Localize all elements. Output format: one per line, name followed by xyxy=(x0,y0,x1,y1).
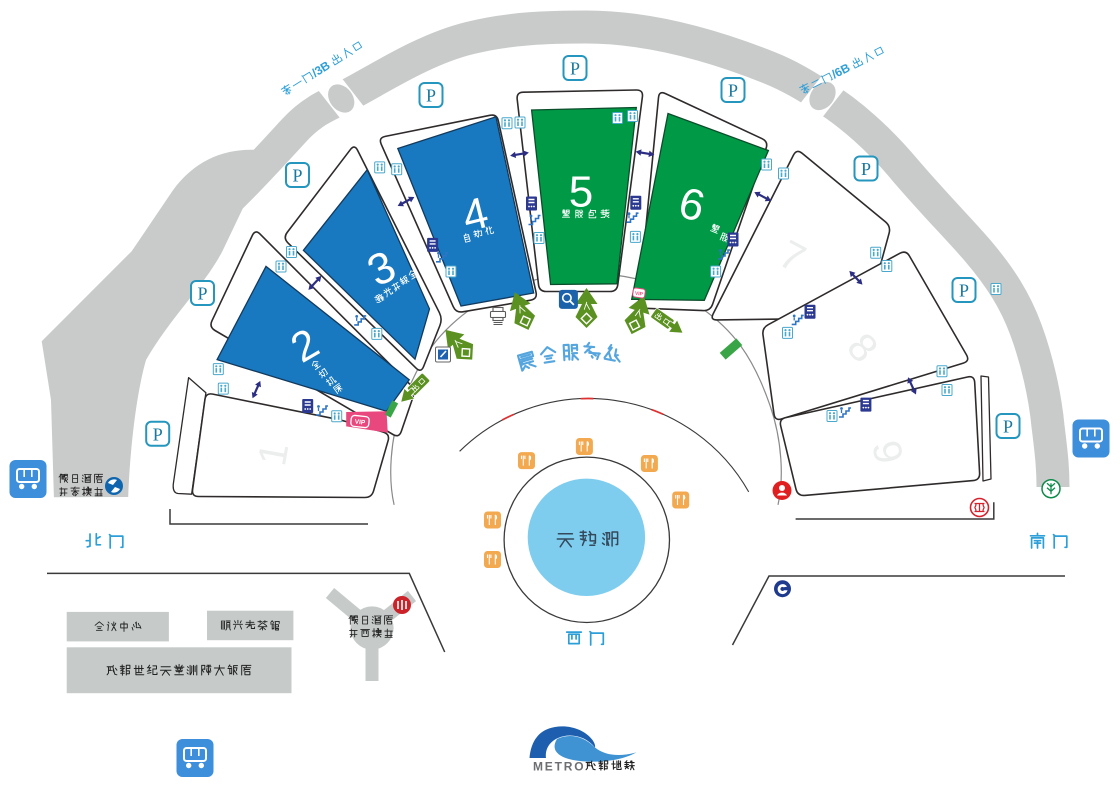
svg-text:VIP: VIP xyxy=(354,419,366,427)
svg-text:VIP: VIP xyxy=(634,291,643,298)
svg-text:METRO: METRO xyxy=(533,760,585,774)
svg-text:5: 5 xyxy=(569,167,593,216)
